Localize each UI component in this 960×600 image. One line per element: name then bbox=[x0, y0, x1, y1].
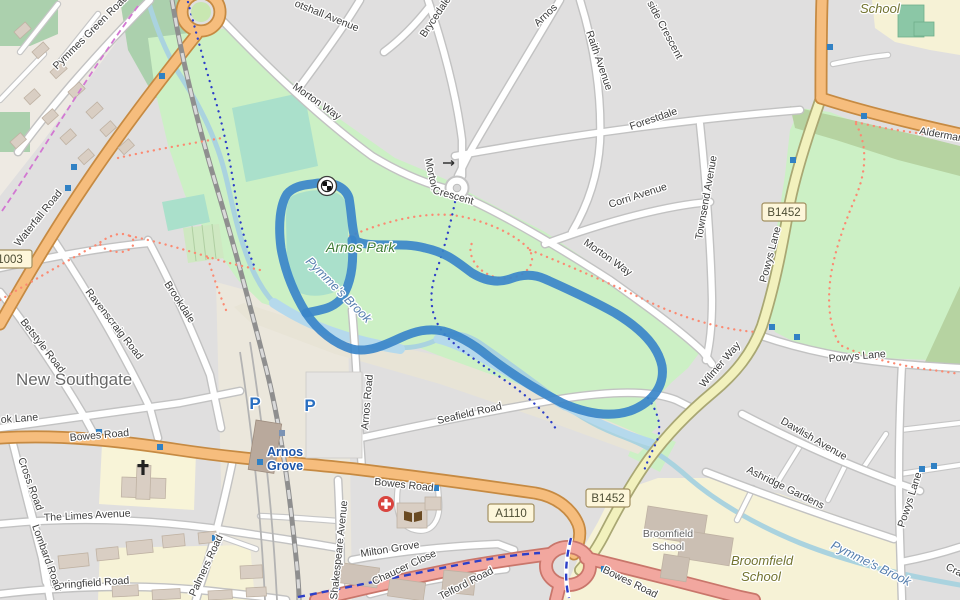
map-label-arnos: Arnos bbox=[267, 445, 303, 459]
parking-icon: P bbox=[249, 394, 260, 413]
bus-stop-marker bbox=[433, 485, 439, 491]
bus-stop-marker bbox=[919, 466, 925, 472]
bus-stop-marker bbox=[861, 113, 867, 119]
bus-stop-marker bbox=[65, 185, 71, 191]
church-icon-bar bbox=[138, 464, 149, 467]
bus-stop-marker bbox=[71, 164, 77, 170]
building bbox=[96, 547, 119, 561]
building bbox=[208, 590, 232, 600]
map-canvas[interactable]: PPPymmes Green Roadotshall AvenueBryceda… bbox=[0, 0, 960, 600]
map-label-new-southgate: New Southgate bbox=[16, 370, 132, 389]
building bbox=[240, 565, 263, 579]
hospital-cross-h bbox=[381, 502, 391, 505]
map-label-school: School bbox=[860, 1, 901, 16]
building bbox=[914, 22, 934, 36]
building bbox=[162, 534, 185, 548]
allotments bbox=[183, 224, 224, 263]
building bbox=[126, 539, 153, 555]
building bbox=[425, 497, 441, 510]
map-label-broomfield: Broomfield bbox=[643, 528, 693, 540]
start-marker-check-1 bbox=[323, 182, 328, 187]
map-label-school: School bbox=[652, 541, 684, 553]
station-entrance-marker bbox=[279, 430, 285, 436]
map-label-broomfield: Broomfield bbox=[731, 553, 794, 568]
bus-stop-marker bbox=[769, 324, 775, 330]
south-stub bbox=[556, 584, 560, 600]
bus-stop-marker bbox=[257, 459, 263, 465]
route-shield-text-1003: 1003 bbox=[0, 254, 23, 266]
route-shield-text-B1452: B1452 bbox=[767, 207, 800, 219]
bus-stop-marker bbox=[794, 334, 800, 340]
building bbox=[58, 553, 89, 569]
church-icon bbox=[141, 460, 144, 475]
roundabout-center bbox=[191, 2, 211, 22]
bus-stop-marker bbox=[931, 463, 937, 469]
route-shield-text-B1452: B1452 bbox=[591, 493, 624, 505]
start-marker-check-2 bbox=[327, 186, 332, 191]
bus-stop-marker bbox=[790, 157, 796, 163]
building bbox=[152, 589, 180, 600]
map-label-grove: Grove bbox=[267, 459, 303, 473]
parking-icon: P bbox=[304, 396, 315, 415]
bus-stop-marker bbox=[157, 444, 163, 450]
building bbox=[660, 554, 689, 582]
building bbox=[246, 587, 266, 597]
bus-stop-marker bbox=[827, 44, 833, 50]
route-shield-text-A1110: A1110 bbox=[495, 508, 527, 520]
map-viewport: PPPymmes Green Roadotshall AvenueBryceda… bbox=[0, 0, 960, 600]
map-label-school: School bbox=[741, 569, 782, 584]
bus-stop-marker bbox=[159, 73, 165, 79]
map-label-arnos-park: Arnos Park bbox=[325, 239, 396, 255]
building bbox=[306, 372, 362, 458]
aldermans-n bbox=[821, 0, 822, 98]
